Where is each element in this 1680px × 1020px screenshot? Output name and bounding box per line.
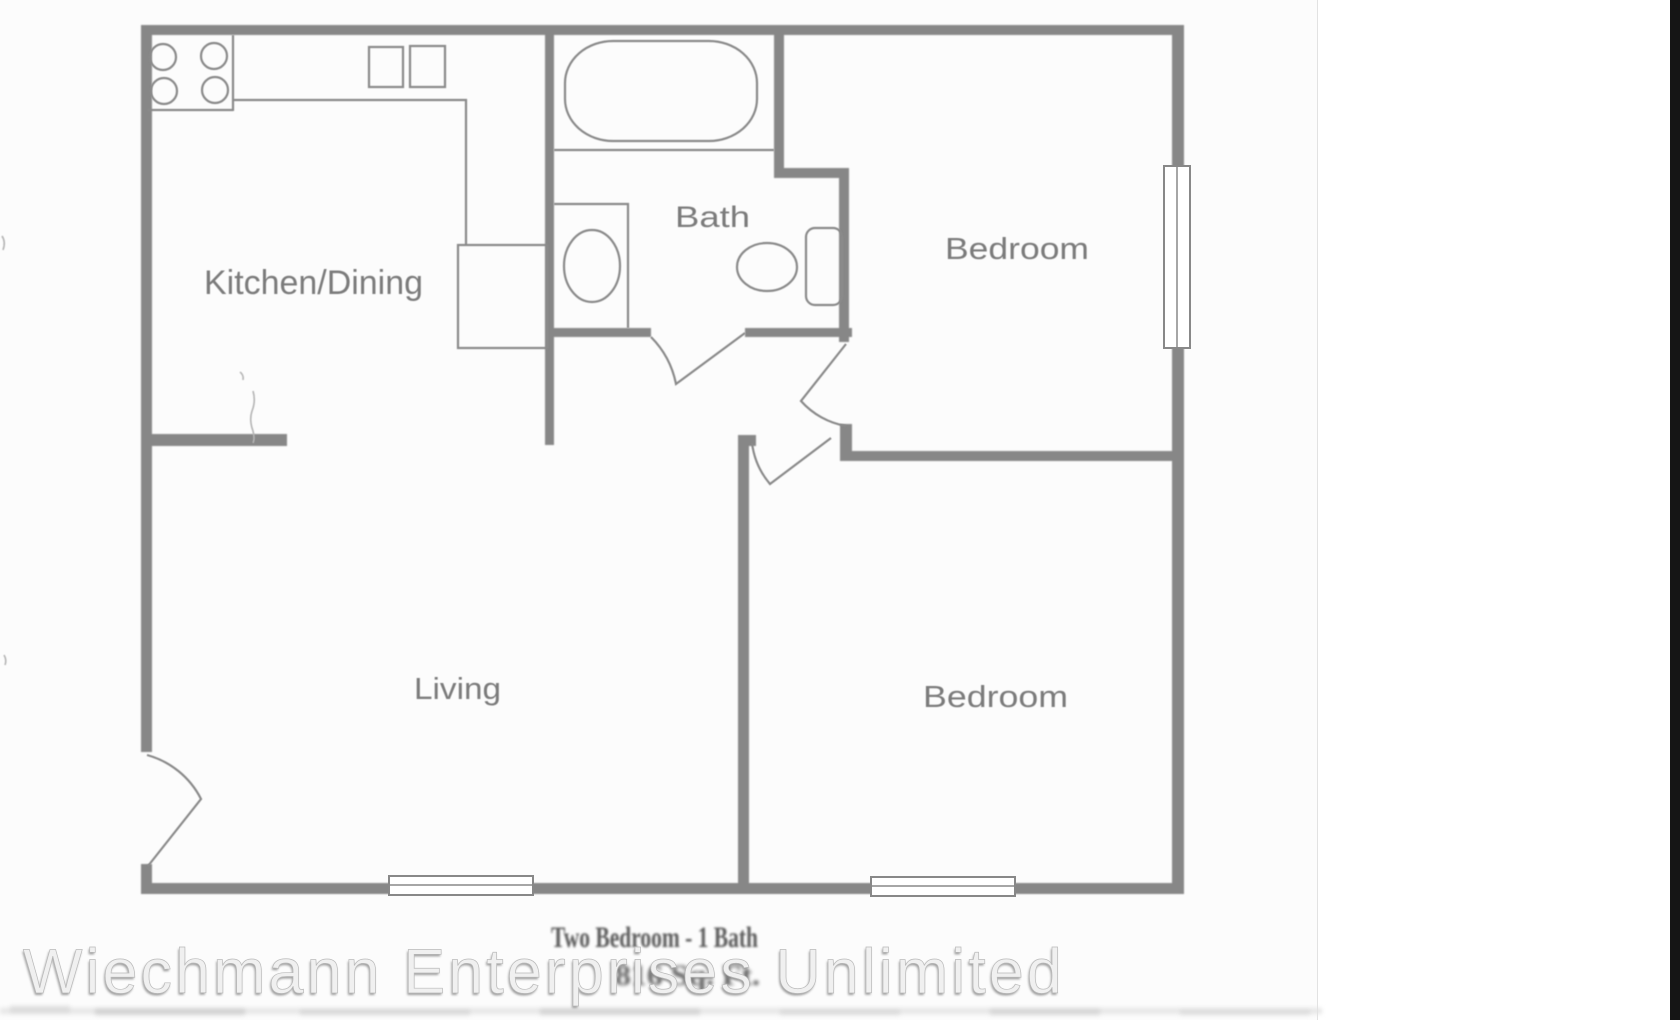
svg-text:Bedroom: Bedroom	[923, 679, 1068, 714]
svg-text:Kitchen/Dining: Kitchen/Dining	[204, 264, 423, 302]
svg-text:Bedroom: Bedroom	[945, 231, 1089, 266]
svg-text:Bath: Bath	[675, 201, 750, 234]
svg-text:Living: Living	[414, 671, 501, 706]
